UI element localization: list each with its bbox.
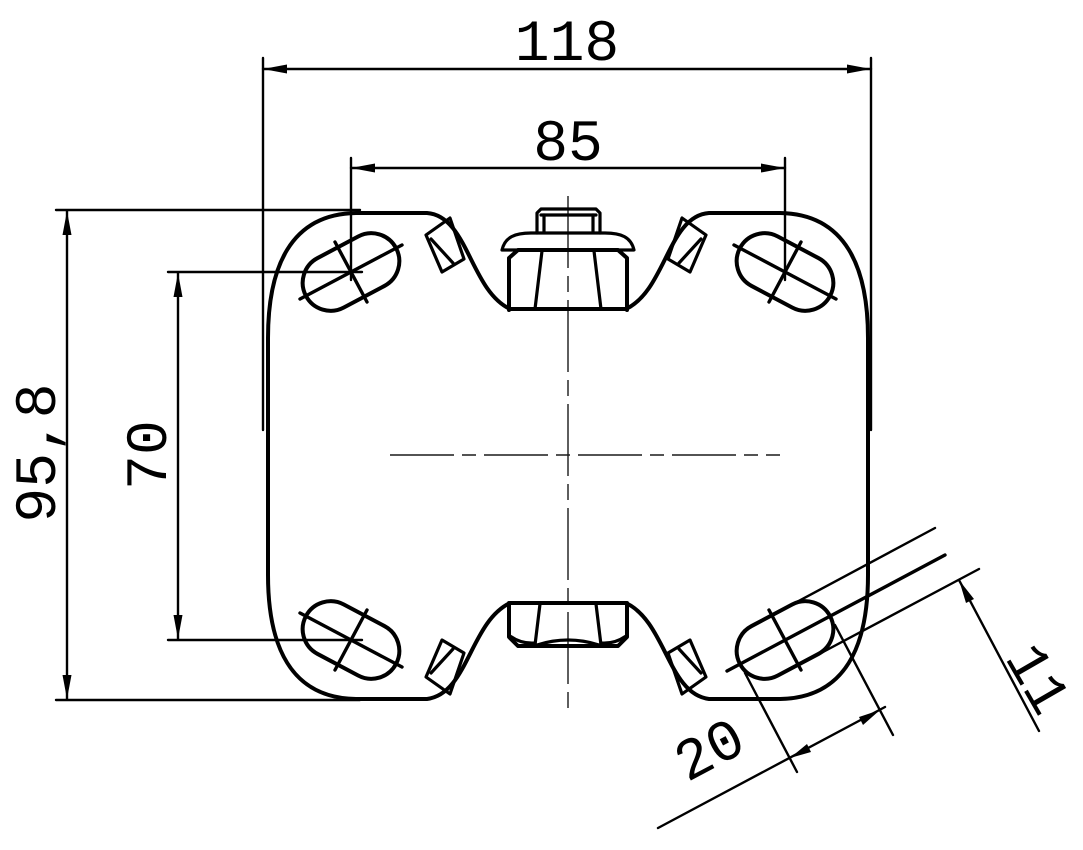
extension-line: [750, 528, 935, 627]
dimension-text-70: 70: [119, 420, 184, 490]
arrowhead-up-icon: [174, 273, 183, 297]
arrowhead-left-icon: [263, 65, 287, 74]
dimension-slot-length: 20: [658, 625, 893, 828]
tab-top-left: [426, 218, 464, 272]
arrowhead-up-icon: [63, 211, 72, 235]
drawing-canvas: 118 85 95,8 70 20: [0, 0, 1083, 850]
hex-facet-right: [594, 251, 601, 309]
arrowhead-left-icon: [351, 164, 375, 173]
arrowhead-up-icon: [959, 580, 974, 603]
hex-facet-left: [535, 604, 540, 645]
dimension-text-20: 20: [665, 708, 757, 798]
arrowhead-right-icon: [761, 164, 785, 173]
corner-tabs: [426, 218, 706, 694]
slot-axis-line-extended: [727, 555, 945, 671]
hex-facet-right: [596, 604, 601, 645]
arrowhead-right-icon: [847, 65, 871, 74]
dimension-text-118: 118: [515, 13, 619, 78]
arrowhead-down-icon: [63, 675, 72, 699]
dimension-overall-height: 95,8: [8, 210, 360, 700]
slot-cross-line: [769, 610, 801, 670]
dimension-text-95-8: 95,8: [8, 383, 73, 522]
hex-facet-left: [535, 251, 542, 309]
arrowhead-left-icon: [790, 744, 811, 758]
tab-bottom-left: [426, 640, 464, 694]
arrowhead-right-icon: [859, 710, 880, 725]
technical-drawing: 118 85 95,8 70 20: [0, 0, 1083, 850]
extension-line: [776, 569, 979, 677]
dimension-text-85: 85: [533, 113, 603, 178]
dimension-text-11: 11: [989, 634, 1080, 727]
dimension-slot-width: 11: [750, 528, 1080, 731]
dimension-hole-spacing-vertical: 70: [119, 272, 362, 640]
center-lines: [390, 196, 780, 716]
dimension-overall-width: 118: [263, 13, 871, 430]
arrowhead-down-icon: [174, 615, 183, 639]
